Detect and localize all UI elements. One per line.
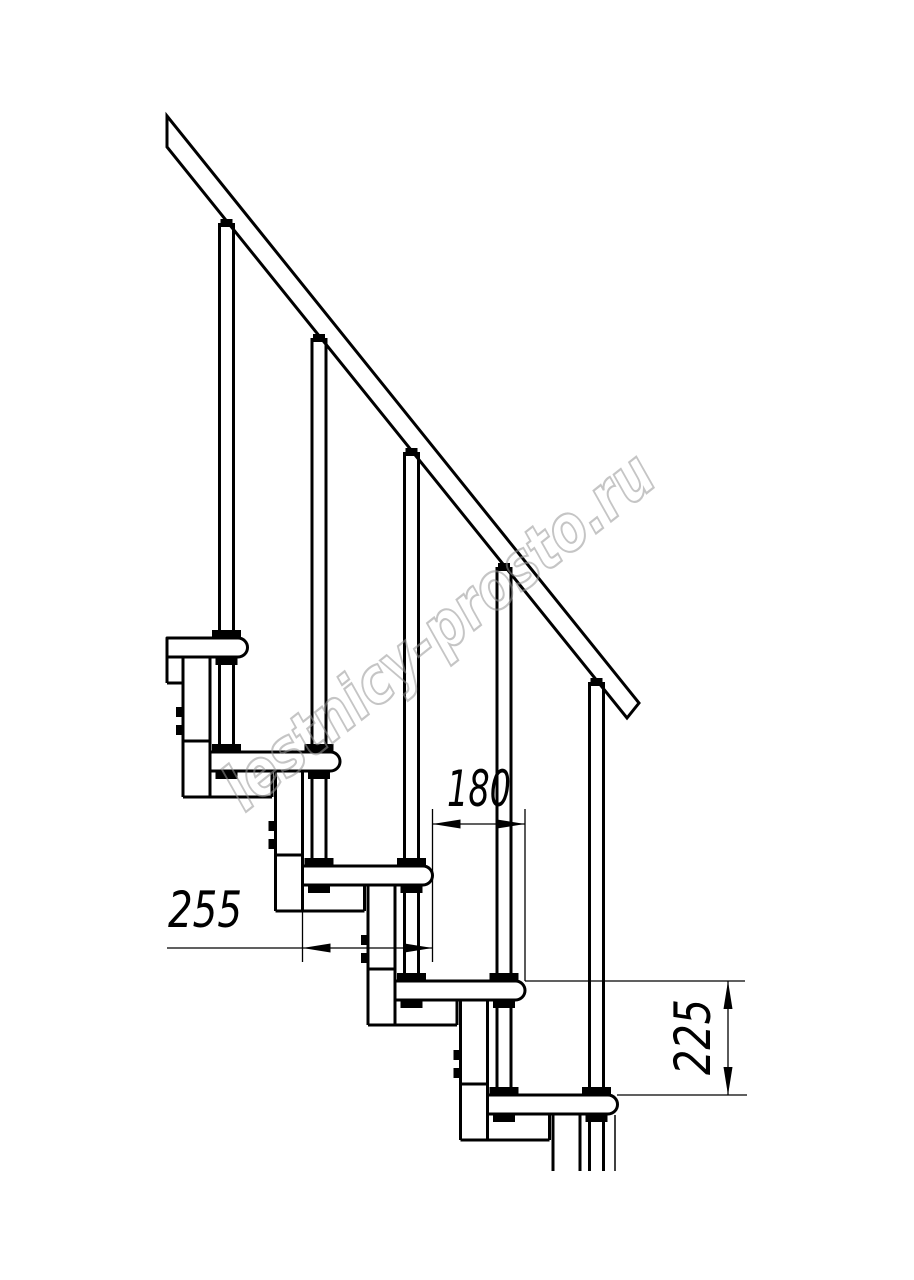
- dim-arrow: [724, 981, 733, 1009]
- clamp-bolt: [454, 1050, 461, 1060]
- clamp-bolt: [176, 725, 183, 735]
- clamp-bolt: [454, 1068, 461, 1078]
- dimension-label-225: 225: [664, 999, 722, 1075]
- dim-arrow: [433, 820, 461, 829]
- baluster-rail-cap: [406, 448, 418, 456]
- clamp-bolt: [269, 839, 276, 849]
- clamp-bolt: [361, 935, 368, 945]
- dim-arrow: [724, 1067, 733, 1095]
- step-tread: [303, 866, 433, 885]
- baluster-rail-cap: [221, 219, 233, 227]
- clamp-bolt: [269, 821, 276, 831]
- baluster-rail-cap: [591, 678, 603, 686]
- clamp-bolt: [361, 953, 368, 963]
- step-tread: [395, 981, 525, 1000]
- watermark-text: lestnicy-prosto.ru: [209, 438, 670, 826]
- baluster-rail-cap: [313, 334, 325, 342]
- step-tread: [167, 638, 248, 657]
- step-tread: [488, 1095, 618, 1114]
- clamp-bolt: [176, 707, 183, 717]
- staircase-drawing: 255180225 lestnicy-prosto.ru: [0, 0, 914, 1280]
- watermark: lestnicy-prosto.ru: [209, 438, 670, 826]
- technical-drawing-page: 255180225 lestnicy-prosto.ru: [0, 0, 914, 1280]
- dimension-label-255: 255: [168, 881, 242, 939]
- dimension-label-180: 180: [447, 760, 511, 818]
- dim-arrow: [303, 944, 331, 953]
